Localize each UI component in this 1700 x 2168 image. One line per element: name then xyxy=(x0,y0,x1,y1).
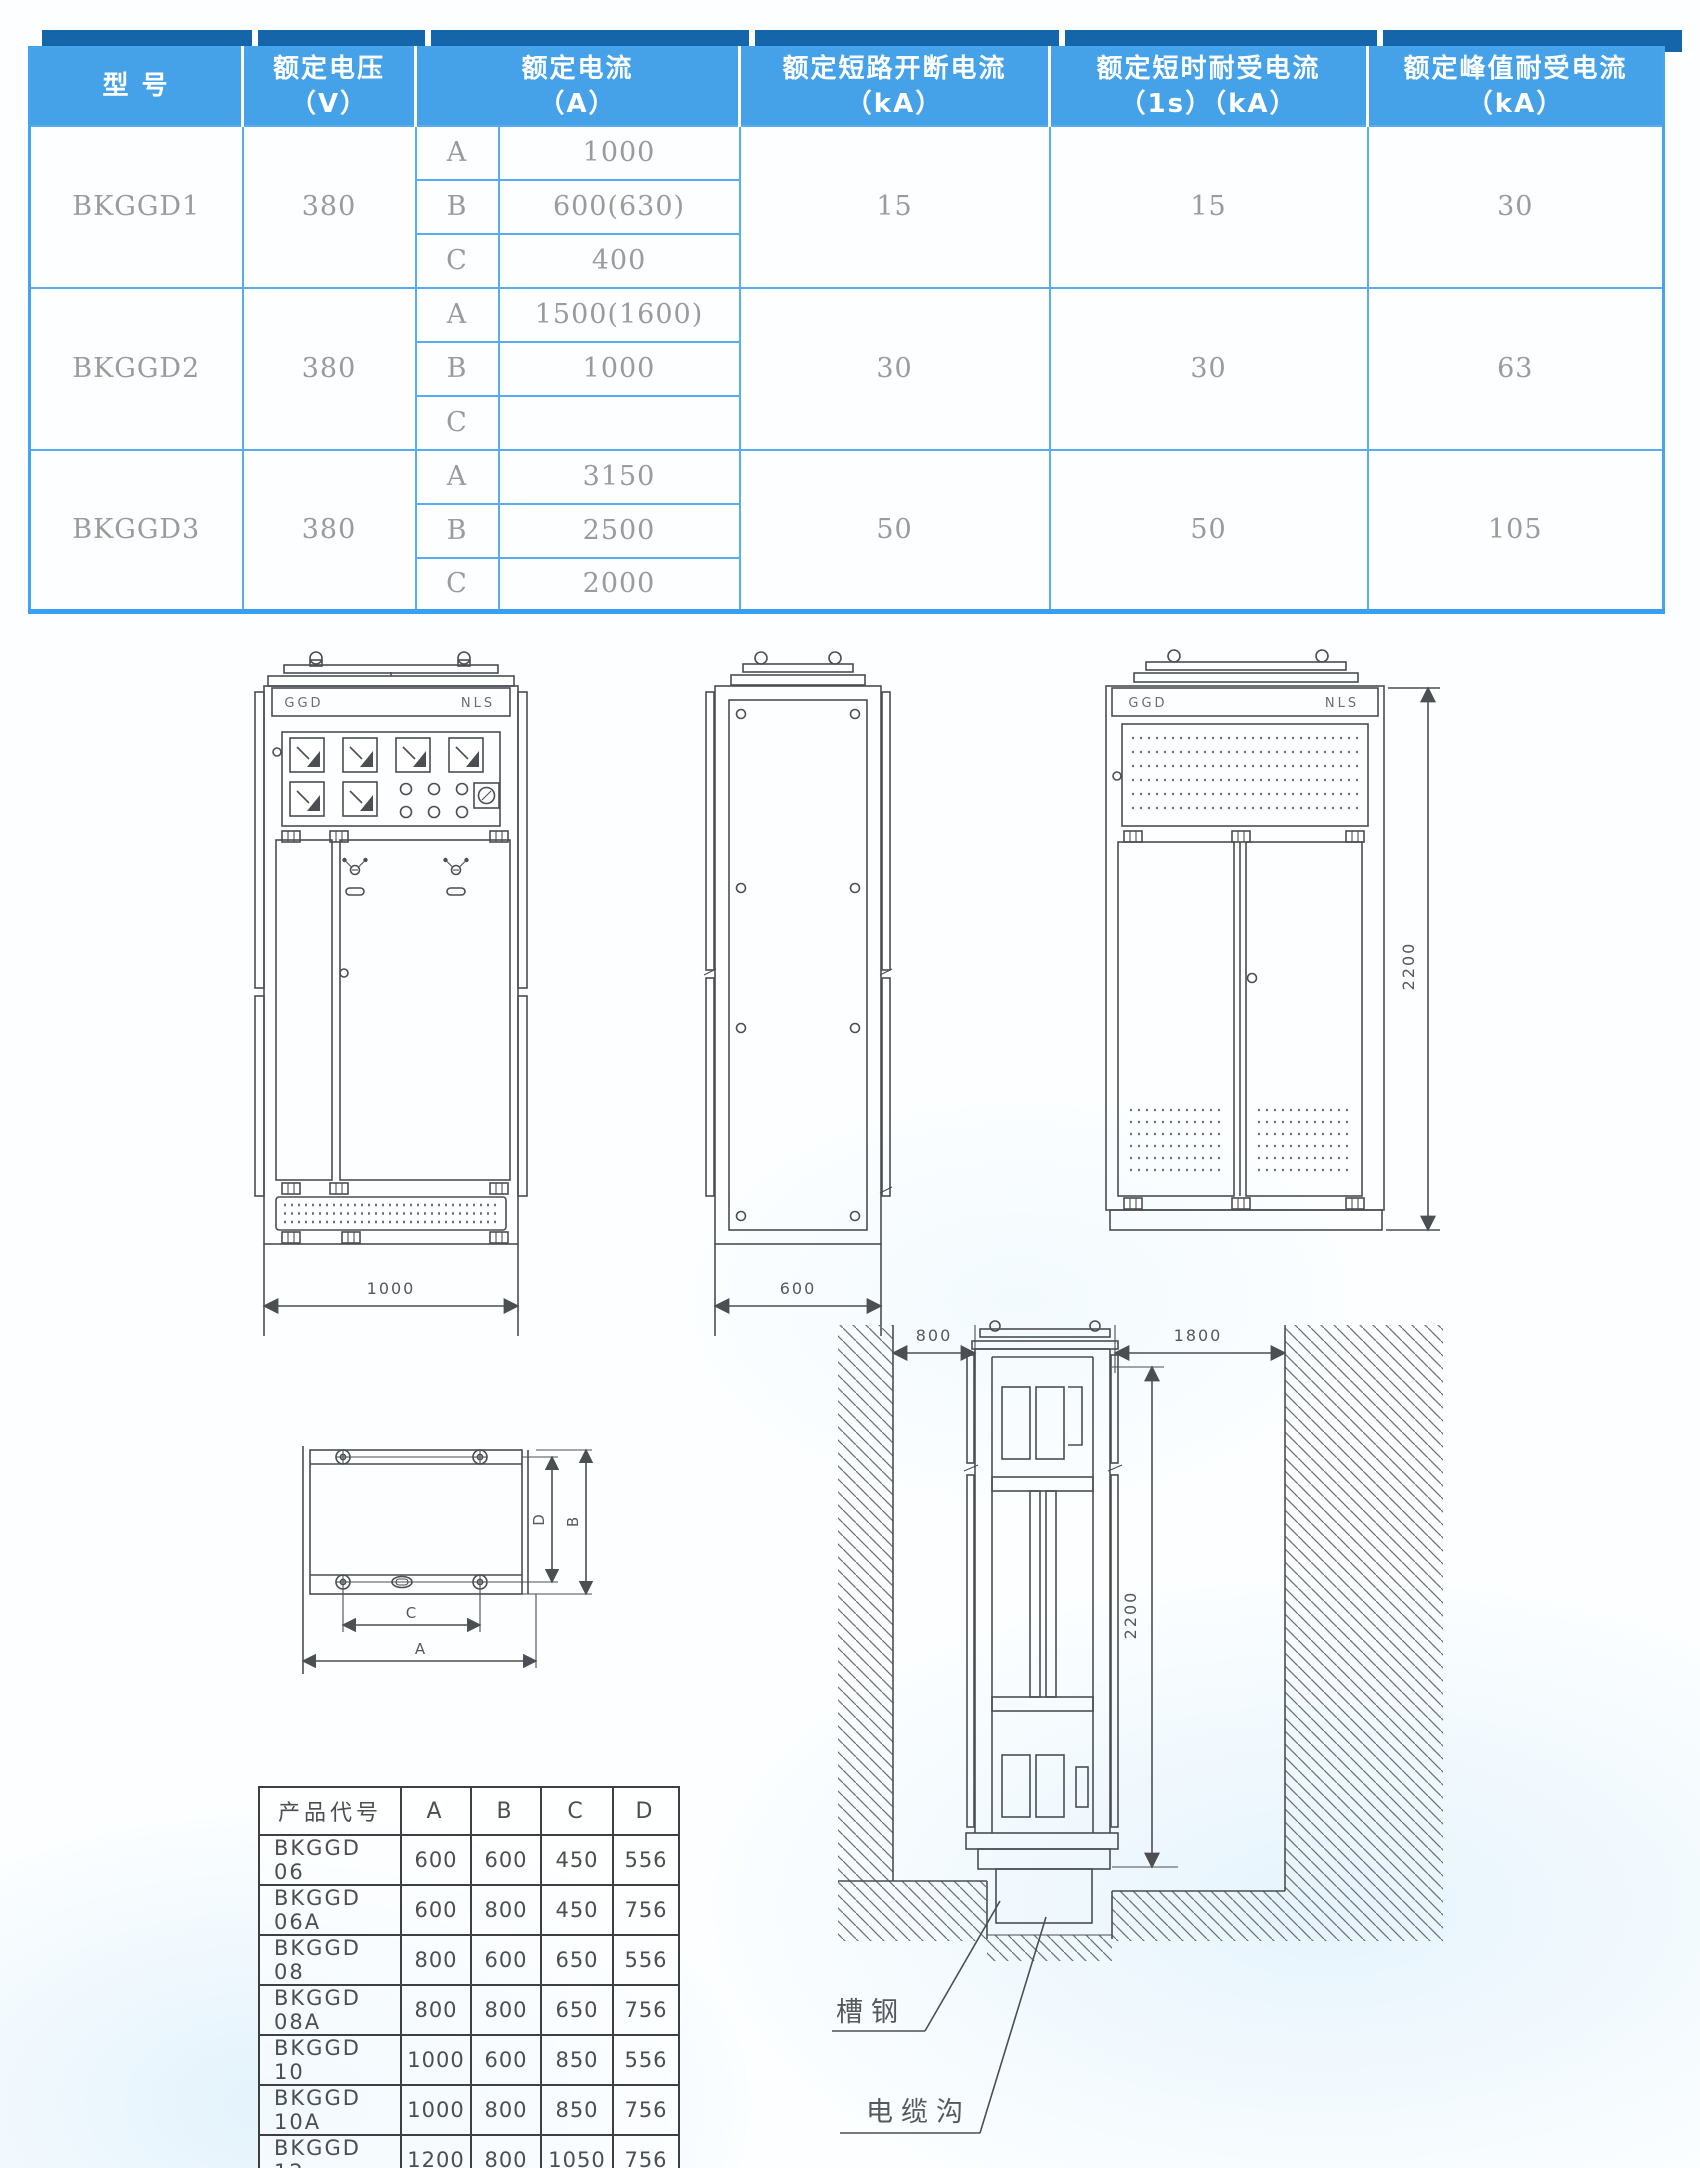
model-cell: BKGGD3 xyxy=(30,450,243,612)
dim-c-label: C xyxy=(406,1604,416,1622)
dim-cell: 450 xyxy=(541,1835,613,1885)
short-time-cell: 50 xyxy=(1050,450,1368,612)
back-view-drawing: GGD NLS xyxy=(1096,648,1446,1248)
indicator-light-icon xyxy=(401,807,412,818)
dim-row: BKGGD 06 600 600 450 556 xyxy=(259,1835,679,1885)
side-panel xyxy=(729,700,867,1230)
cabinet-base xyxy=(1110,1210,1382,1230)
dim-cell: 556 xyxy=(613,1935,679,1985)
current-cell: 1000 xyxy=(499,126,740,180)
grade-cell: A xyxy=(416,126,499,180)
floor xyxy=(838,1881,1443,1961)
nameplate-right-label: NLS xyxy=(1325,696,1359,711)
meter-icon xyxy=(396,738,430,772)
top-view-drawing: D B C A xyxy=(290,1432,610,1682)
nameplate-left-label: GGD xyxy=(1128,696,1167,711)
current-cell: 2000 xyxy=(499,558,740,612)
product-code-cell: BKGGD 06 xyxy=(259,1835,401,1885)
product-code-cell: BKGGD 08 xyxy=(259,1935,401,1985)
dim-cell: 1050 xyxy=(541,2135,613,2168)
peak-cell: 63 xyxy=(1368,288,1664,450)
dim-a-label: A xyxy=(415,1640,426,1658)
base-frame-outline xyxy=(310,1450,528,1594)
meter-icon xyxy=(290,738,324,772)
right-wall xyxy=(1285,1325,1443,1891)
cabinet-body xyxy=(715,686,881,1244)
voltage-cell: 380 xyxy=(243,126,416,288)
model-cell: BKGGD2 xyxy=(30,288,243,450)
nameplate-strip: GGD NLS xyxy=(1112,688,1378,716)
grade-cell: B xyxy=(416,504,499,558)
right-rear-door xyxy=(1246,842,1362,1196)
dimension-2200: 2200 xyxy=(1112,1367,1178,1867)
dim-cell: 556 xyxy=(613,1835,679,1885)
base-flange xyxy=(966,1833,1118,1849)
right-door xyxy=(340,840,510,1180)
lower-compartment xyxy=(1002,1755,1088,1817)
short-time-cell: 30 xyxy=(1050,288,1368,450)
left-rear-door xyxy=(1118,842,1234,1196)
cabinet-side-profile xyxy=(964,1321,1122,1923)
side-flanges xyxy=(704,692,892,1196)
left-door xyxy=(276,840,332,1180)
current-cell: 400 xyxy=(499,234,740,288)
lifting-eyes xyxy=(1134,650,1358,682)
col-header-peak-withstand: 额定峰值耐受电流（kA） xyxy=(1368,48,1664,126)
current-cell: 2500 xyxy=(499,504,740,558)
indicator-light-icon xyxy=(401,784,412,795)
indicator-light-icon xyxy=(457,784,468,795)
dim-cell: 800 xyxy=(471,2135,541,2168)
cable-trench-label: 电缆沟 xyxy=(866,2097,971,2128)
width-dimension: 1000 xyxy=(264,1244,518,1336)
current-cell: 600(630) xyxy=(499,180,740,234)
rear-doors xyxy=(1118,842,1362,1196)
voltage-cell: 380 xyxy=(243,450,416,612)
lifting-eyes xyxy=(731,652,865,685)
col-header-current: 额定电流（A） xyxy=(416,48,740,126)
front-doors xyxy=(276,840,510,1180)
spec-table-section: 型 号 额定电压（V） 额定电流（A） 额定短路开断电流（kA） 额定短时耐受电… xyxy=(28,46,1662,614)
grade-cell: C xyxy=(416,234,499,288)
product-code-cell: BKGGD 12 xyxy=(259,2135,401,2168)
dim-cell: 600 xyxy=(471,1835,541,1885)
door-handle-icon xyxy=(1248,974,1257,983)
spec-row: BKGGD3 380 A 3150 50 50 105 xyxy=(30,450,1664,504)
top-vent-panel xyxy=(1113,724,1368,826)
peak-cell: 105 xyxy=(1368,450,1664,612)
grade-cell: C xyxy=(416,396,499,450)
meter-icon xyxy=(343,782,377,816)
dim-row: BKGGD 08 800 600 650 556 xyxy=(259,1935,679,1985)
dimension-1800: 1800 xyxy=(1115,1325,1285,1373)
meter-icon xyxy=(290,782,324,816)
grade-cell: C xyxy=(416,558,499,612)
catalog-page: 型 号 额定电压（V） 额定电流（A） 额定短路开断电流（kA） 额定短时耐受电… xyxy=(0,0,1700,2168)
dim-cell: 600 xyxy=(401,1885,471,1935)
back-height-value: 2200 xyxy=(1399,942,1418,991)
dim-col-a: A xyxy=(401,1787,471,1835)
spec-table: 型 号 额定电压（V） 额定电流（A） 额定短路开断电流（kA） 额定短时耐受电… xyxy=(28,46,1665,614)
dim-header-row: 产品代号 A B C D xyxy=(259,1787,679,1835)
dimension-table: 产品代号 A B C D BKGGD 06 600 600 450 556 BK… xyxy=(258,1786,680,2168)
ventilation-grille xyxy=(276,1197,506,1230)
right-clearance-value: 1800 xyxy=(1174,1326,1223,1345)
dim-cell: 756 xyxy=(613,1985,679,2035)
col-header-breaking-current: 额定短路开断电流（kA） xyxy=(740,48,1050,126)
dim-cell: 600 xyxy=(471,1935,541,1985)
door-lock-icon xyxy=(342,858,367,875)
left-clearance-value: 800 xyxy=(916,1326,953,1345)
col-header-short-time-withstand: 额定短时耐受电流（1s）（kA） xyxy=(1050,48,1368,126)
height-dimension: 2200 xyxy=(1386,688,1440,1230)
model-cell: BKGGD1 xyxy=(30,126,243,288)
busbar-compartment xyxy=(1002,1387,1082,1459)
dim-col-d: D xyxy=(613,1787,679,1835)
instrument-panel xyxy=(273,732,500,826)
grade-cell: A xyxy=(416,288,499,342)
dim-cell: 800 xyxy=(401,1935,471,1985)
lifting-eyes xyxy=(268,652,514,686)
breaking-cell: 30 xyxy=(740,288,1050,450)
col-header-model: 型 号 xyxy=(30,48,243,126)
dim-b-label: B xyxy=(564,1517,582,1527)
grade-cell: B xyxy=(416,180,499,234)
base-step xyxy=(978,1849,1110,1869)
nameplate-strip: GGD NLS xyxy=(272,688,510,716)
current-cell: 1500(1600) xyxy=(499,288,740,342)
cabinet-body xyxy=(1106,686,1384,1210)
peak-cell: 30 xyxy=(1368,126,1664,288)
dim-col-product-code: 产品代号 xyxy=(259,1787,401,1835)
dim-col-c: C xyxy=(541,1787,613,1835)
side-view-drawing: 600 xyxy=(703,648,898,1340)
spec-header-row: 型 号 额定电压（V） 额定电流（A） 额定短路开断电流（kA） 额定短时耐受电… xyxy=(30,48,1664,126)
channel-steel-base xyxy=(996,1869,1092,1923)
product-code-cell: BKGGD 06A xyxy=(259,1885,401,1935)
door-handle-icon xyxy=(340,969,348,977)
dim-cell: 556 xyxy=(613,2035,679,2085)
dim-cell: 756 xyxy=(613,1885,679,1935)
grade-cell: A xyxy=(416,450,499,504)
panel-bolts xyxy=(737,710,860,1221)
indicator-light-icon xyxy=(457,807,468,818)
indicator-light-icon xyxy=(429,807,440,818)
dim-row: BKGGD 10 1000 600 850 556 xyxy=(259,2035,679,2085)
current-cell xyxy=(499,396,740,450)
dim-cell: 756 xyxy=(613,2135,679,2168)
spec-row: BKGGD2 380 A 1500(1600) 30 30 63 xyxy=(30,288,1664,342)
dim-cell: 600 xyxy=(471,2035,541,2085)
dim-cell: 1200 xyxy=(401,2135,471,2168)
product-code-cell: BKGGD 10 xyxy=(259,2035,401,2085)
dim-d-label: D xyxy=(530,1514,548,1526)
col-header-voltage: 额定电压（V） xyxy=(243,48,416,126)
installation-diagram: 800 1800 2200 槽钢 电缆沟 xyxy=(830,1315,1445,2165)
grade-cell: B xyxy=(416,342,499,396)
dim-cell: 600 xyxy=(401,1835,471,1885)
left-wall xyxy=(838,1325,893,1881)
dim-cell: 756 xyxy=(613,2085,679,2135)
front-view-drawing: GGD NLS xyxy=(246,648,536,1340)
install-height-value: 2200 xyxy=(1121,1591,1140,1640)
nameplate-right-label: NLS xyxy=(461,696,495,711)
short-time-cell: 15 xyxy=(1050,126,1368,288)
dim-cell: 1000 xyxy=(401,2085,471,2135)
current-cell: 1000 xyxy=(499,342,740,396)
product-code-cell: BKGGD 10A xyxy=(259,2085,401,2135)
dim-cell: 650 xyxy=(541,1935,613,1985)
dim-row: BKGGD 06A 600 800 450 756 xyxy=(259,1885,679,1935)
meter-icon xyxy=(343,738,377,772)
trench-bottom xyxy=(987,1935,1112,1961)
dim-cell: 800 xyxy=(471,1885,541,1935)
dim-cell: 800 xyxy=(401,1985,471,2035)
nameplate-left-label: GGD xyxy=(284,696,323,711)
voltage-cell: 380 xyxy=(243,288,416,450)
channel-steel-label: 槽钢 xyxy=(836,1997,906,2028)
dim-cell: 450 xyxy=(541,1885,613,1935)
side-depth-value: 600 xyxy=(780,1279,817,1298)
dimension-800: 800 xyxy=(893,1325,975,1375)
breaking-cell: 15 xyxy=(740,126,1050,288)
spec-row: BKGGD1 380 A 1000 15 15 30 xyxy=(30,126,1664,180)
dim-cell: 650 xyxy=(541,1985,613,2035)
dim-row: BKGGD 10A 1000 800 850 756 xyxy=(259,2085,679,2135)
breaking-cell: 50 xyxy=(740,450,1050,612)
dim-cell: 800 xyxy=(471,2085,541,2135)
dim-row: BKGGD 08A 800 800 650 756 xyxy=(259,1985,679,2035)
dimension-d: D xyxy=(488,1457,558,1582)
dim-cell: 850 xyxy=(541,2035,613,2085)
front-width-value: 1000 xyxy=(367,1279,416,1298)
dim-row: BKGGD 12 1200 800 1050 756 xyxy=(259,2135,679,2168)
dim-cell: 1000 xyxy=(401,2035,471,2085)
product-code-cell: BKGGD 08A xyxy=(259,1985,401,2035)
door-lock-icon xyxy=(443,858,468,875)
meter-icon xyxy=(449,738,483,772)
dim-cell: 850 xyxy=(541,2085,613,2135)
dim-col-b: B xyxy=(471,1787,541,1835)
current-cell: 3150 xyxy=(499,450,740,504)
dimension-a: A xyxy=(303,1594,536,1668)
dim-cell: 800 xyxy=(471,1985,541,2035)
indicator-light-icon xyxy=(429,784,440,795)
